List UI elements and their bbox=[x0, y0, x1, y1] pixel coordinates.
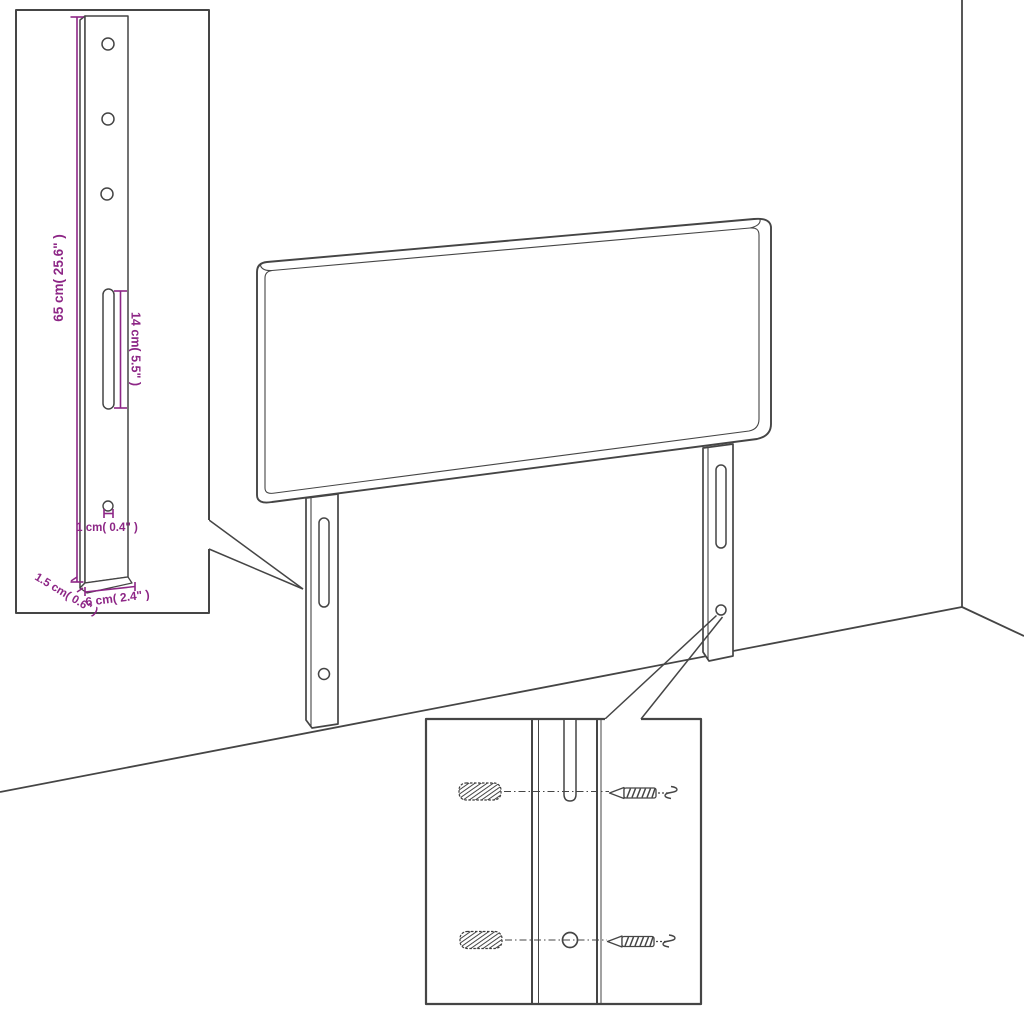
assembly-diagram: 65 cm( 25.6" ) 14 cm( 5.5" ) 1 cm( 0.4" … bbox=[0, 0, 1024, 1024]
left-leg-slot bbox=[319, 518, 329, 607]
floor-wall-line-right bbox=[962, 607, 1024, 636]
bracket-slot bbox=[103, 289, 114, 409]
right-leg-hole bbox=[716, 605, 726, 615]
slot-length-label: 14 cm( 5.5" ) bbox=[129, 312, 143, 386]
left-leg-hole bbox=[319, 669, 330, 680]
bracket-hole-1 bbox=[102, 38, 114, 50]
left-leg bbox=[306, 494, 338, 728]
diagram-canvas: 65 cm( 25.6" ) 14 cm( 5.5" ) 1 cm( 0.4" … bbox=[0, 0, 1024, 1024]
callout-leader-right bbox=[641, 617, 723, 719]
bracket-hole-2 bbox=[102, 113, 114, 125]
fixing-detail-callout bbox=[426, 616, 723, 1005]
headboard-outline bbox=[257, 219, 771, 503]
right-leg bbox=[703, 444, 733, 661]
leg-closeup-slot bbox=[564, 720, 576, 801]
wall-plug-icon bbox=[459, 783, 501, 800]
bracket-hole-3 bbox=[101, 188, 113, 200]
leg-height-label: 65 cm( 25.6" ) bbox=[51, 234, 66, 321]
right-leg-slot bbox=[716, 465, 726, 548]
headboard bbox=[257, 219, 771, 503]
wall-plug-icon bbox=[460, 932, 502, 949]
callout-leader-left bbox=[605, 616, 717, 720]
hole-diameter-label: 1 cm( 0.4" ) bbox=[76, 522, 138, 534]
leg-bracket-closeup bbox=[80, 16, 132, 593]
